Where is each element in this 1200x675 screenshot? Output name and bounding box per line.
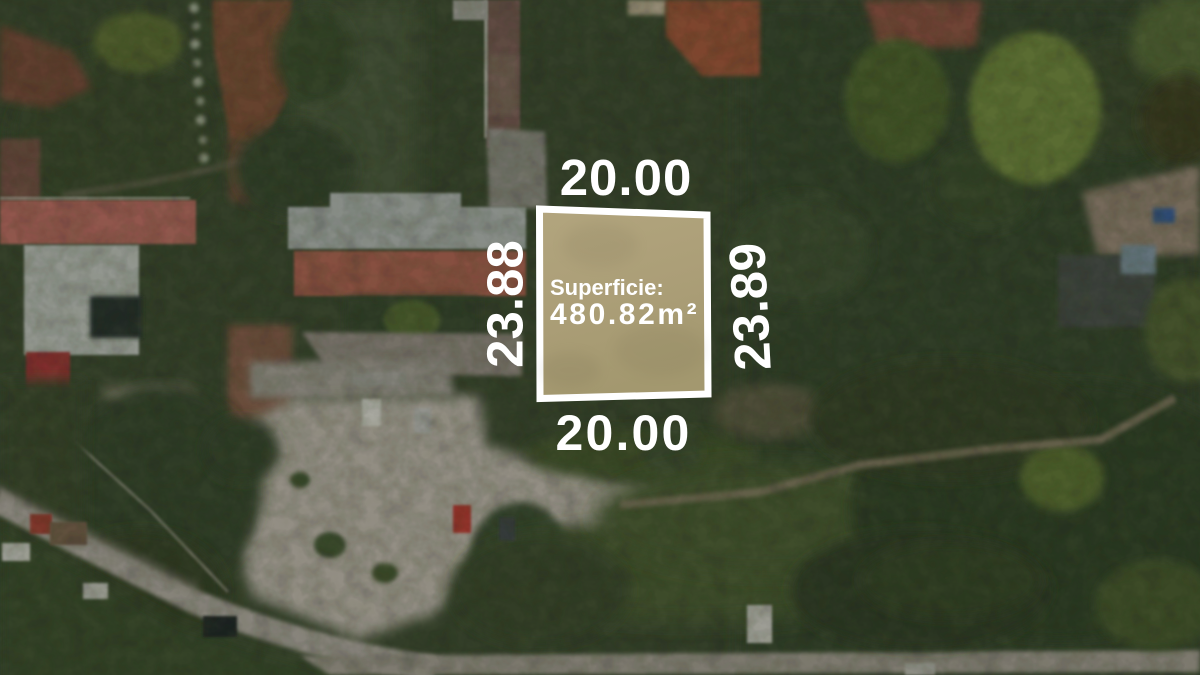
svg-text:23.89: 23.89 (718, 241, 782, 371)
svg-text:23.88: 23.88 (476, 240, 533, 368)
svg-text:20.00: 20.00 (555, 405, 691, 461)
svg-text:Superficie:: Superficie: (550, 275, 664, 300)
svg-text:20.00: 20.00 (560, 149, 693, 206)
svg-text:480.82m²: 480.82m² (550, 298, 699, 331)
